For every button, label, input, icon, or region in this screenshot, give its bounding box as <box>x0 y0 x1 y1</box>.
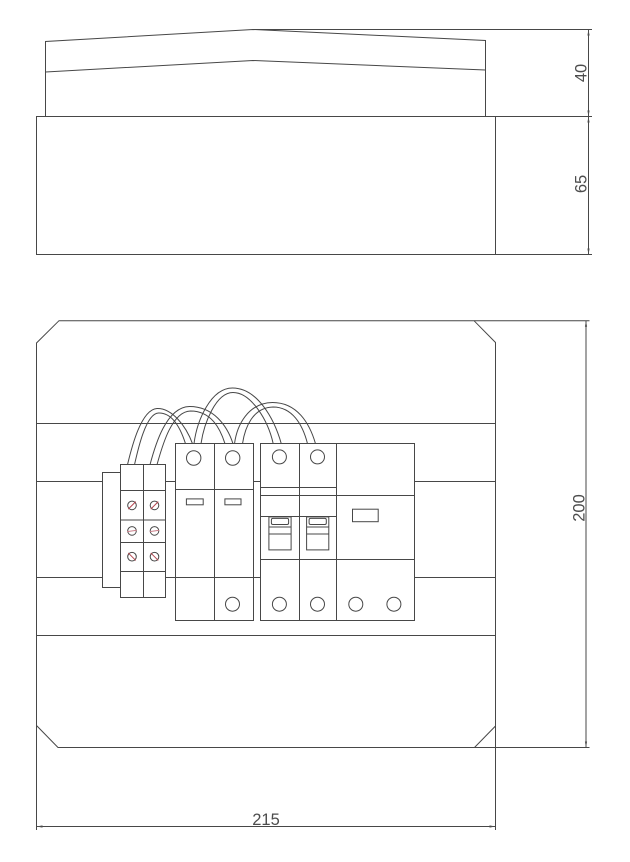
svg-text:200: 200 <box>571 494 589 522</box>
svg-text:65: 65 <box>573 175 591 193</box>
svg-text:215: 215 <box>252 811 280 829</box>
svg-text:40: 40 <box>573 64 591 82</box>
